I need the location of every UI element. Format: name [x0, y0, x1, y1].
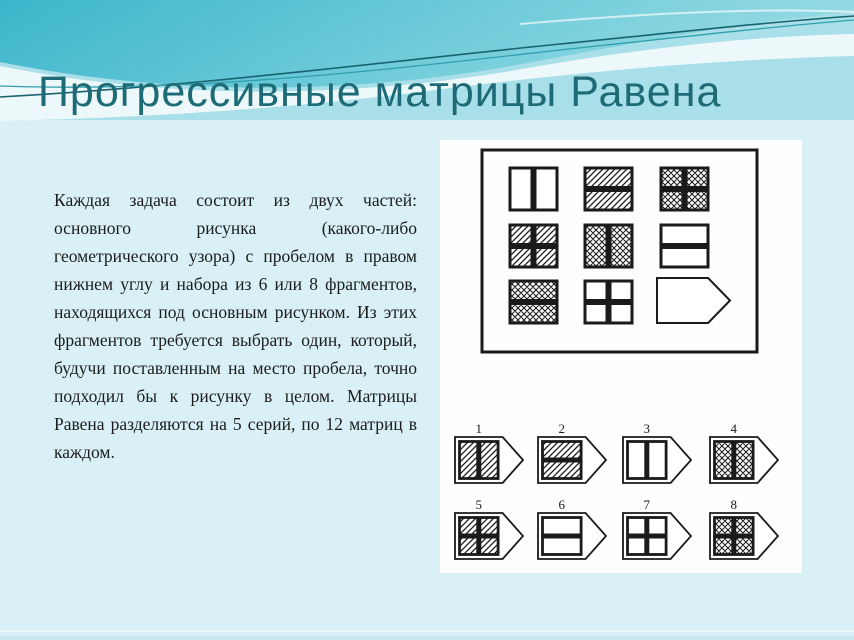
raven-matrix-figure: 12345678 [440, 140, 802, 573]
cell-bar-horizontal [460, 534, 499, 539]
cell-bar-horizontal [661, 186, 708, 192]
bottom-highlight-line [0, 630, 854, 632]
matrix-grid [482, 150, 757, 352]
missing-piece-placeholder [657, 278, 730, 323]
answer-option-label: 8 [731, 497, 738, 512]
slide-body-text: Каждая задача состоит из двух частей: ос… [54, 186, 417, 466]
cell-bar-horizontal [510, 243, 557, 249]
answer-option: 1 [455, 421, 523, 483]
answer-option-label: 6 [559, 497, 566, 512]
answer-option: 3 [623, 421, 691, 483]
answer-option: 7 [623, 497, 691, 559]
answer-option-label: 7 [644, 497, 651, 512]
cell-bar-horizontal [543, 458, 582, 463]
cell-bar-horizontal [510, 299, 557, 305]
answer-option: 8 [710, 497, 778, 559]
cell-bar-horizontal [715, 534, 754, 539]
answer-option: 4 [710, 421, 778, 483]
cell-bar-horizontal [661, 243, 708, 249]
answer-option: 5 [455, 497, 523, 559]
answer-option-label: 4 [731, 421, 738, 436]
answer-option-label: 1 [476, 421, 483, 436]
answer-option-label: 5 [476, 497, 483, 512]
answer-options: 12345678 [455, 421, 778, 559]
cell-bar-horizontal [585, 186, 632, 192]
cell-bar-horizontal [628, 534, 667, 539]
cell-bar-vertical [531, 168, 537, 210]
answer-option: 2 [538, 421, 606, 483]
raven-figure-panel: 12345678 [440, 140, 802, 573]
answer-option-label: 3 [644, 421, 651, 436]
bottom-edge-strip [0, 636, 854, 640]
slide-canvas: Прогрессивные матрицы Равена Каждая зада… [0, 0, 854, 640]
cell-bar-vertical [476, 442, 481, 479]
answer-option-label: 2 [559, 421, 566, 436]
answer-option: 6 [538, 497, 606, 559]
cell-bar-horizontal [543, 534, 582, 539]
cell-bar-vertical [606, 225, 612, 267]
cell-bar-horizontal [585, 299, 632, 305]
cell-bar-vertical [731, 442, 736, 479]
cell-bar-vertical [644, 442, 649, 479]
slide-title: Прогрессивные матрицы Равена [38, 68, 721, 117]
